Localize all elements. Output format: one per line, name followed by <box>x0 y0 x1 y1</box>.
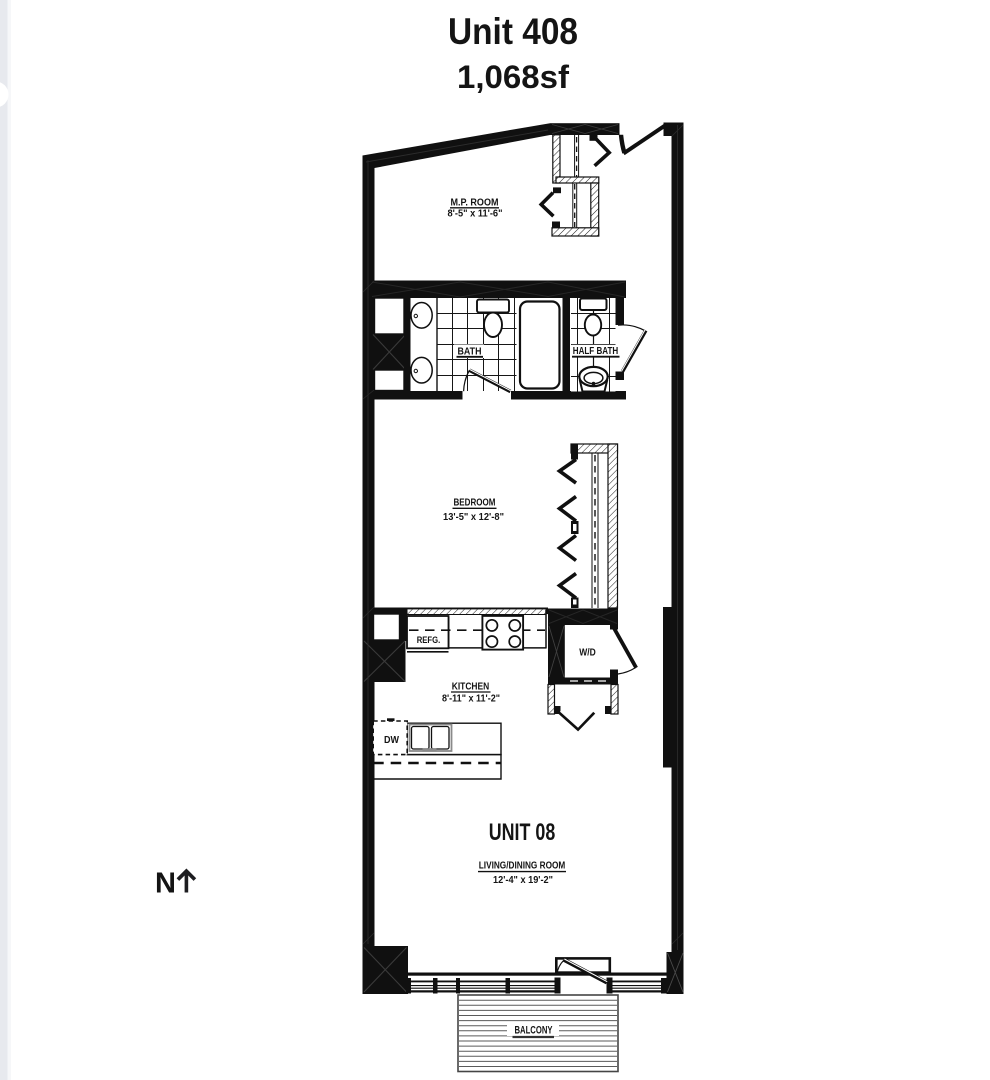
svg-text:KITCHEN: KITCHEN <box>452 681 490 693</box>
svg-text:BEDROOM: BEDROOM <box>454 497 496 509</box>
svg-text:HALF BATH: HALF BATH <box>573 345 619 357</box>
svg-text:8'-11" x 11'-2": 8'-11" x 11'-2" <box>442 694 500 705</box>
svg-text:UNIT 08: UNIT 08 <box>489 819 556 846</box>
svg-text:8'-5" x 11'-6": 8'-5" x 11'-6" <box>448 209 503 220</box>
svg-text:Unit 408: Unit 408 <box>448 11 578 52</box>
svg-text:1,068sf: 1,068sf <box>457 59 569 95</box>
svg-text:REFG.: REFG. <box>417 635 441 645</box>
svg-text:13'-5" x 12'-8": 13'-5" x 12'-8" <box>443 512 504 523</box>
svg-text:W/D: W/D <box>579 646 596 658</box>
svg-text:BALCONY: BALCONY <box>515 1025 553 1037</box>
svg-text:M.P. ROOM: M.P. ROOM <box>451 196 499 208</box>
svg-text:LIVING/DINING ROOM: LIVING/DINING ROOM <box>479 860 566 872</box>
svg-text:12'-4" x 19'-2": 12'-4" x 19'-2" <box>493 875 553 886</box>
svg-text:N: N <box>155 868 176 900</box>
svg-text:DW: DW <box>384 734 399 746</box>
svg-text:BATH: BATH <box>458 345 482 357</box>
